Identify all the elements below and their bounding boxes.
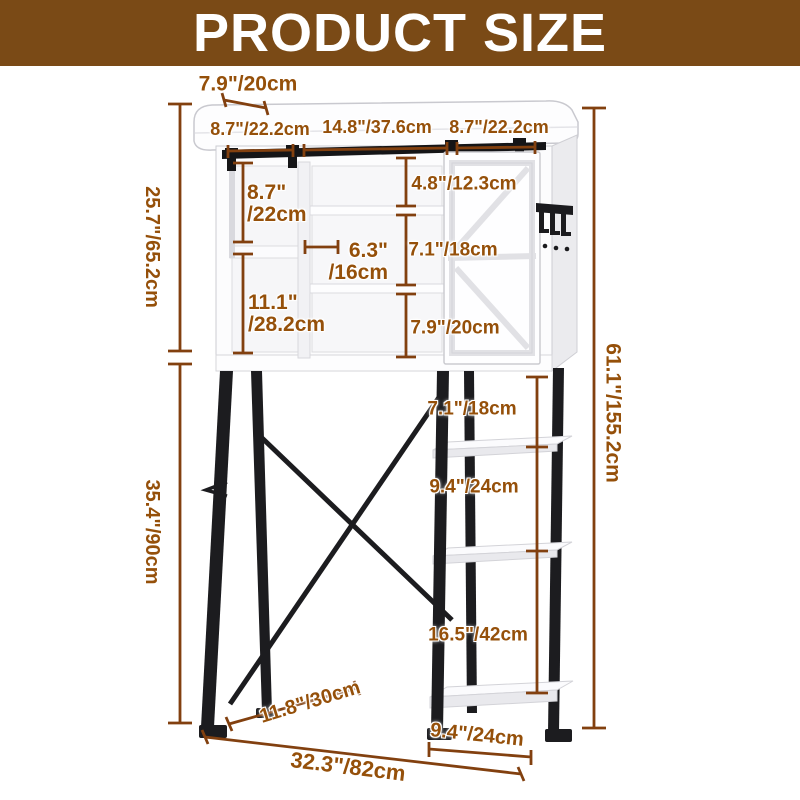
dim-stand-height: 35.4"/90cm (142, 479, 162, 584)
dim-top-width-middle: 14.8"/37.6cm (322, 118, 432, 136)
product-size-infographic: PRODUCT SIZE (0, 0, 800, 800)
dim-ladder-gap-middle: 9.4"/24cm (429, 478, 518, 497)
dim-ladder-gap-top: 7.1"/18cm (427, 400, 516, 419)
stand-frame (199, 368, 573, 742)
dim-middle-shelf: 6.3" /16cm (328, 240, 388, 284)
dim-top-depth: 7.9"/20cm (199, 74, 298, 95)
dim-left-upper-compartment: 8.7" /22cm (247, 182, 307, 226)
dim-top-width-right: 8.7"/22.2cm (449, 118, 549, 136)
cabinet-side-panel (552, 135, 577, 371)
dim-top-width-left: 8.7"/22.2cm (210, 120, 310, 138)
dim-left-lower-compartment: 11.1" /28.2cm (248, 292, 325, 336)
dim-cabinet-height: 25.7"/65.2cm (142, 186, 162, 308)
dim-total-height: 61.1"/155.2cm (603, 343, 624, 483)
dim-center-gap-middle: 7.1"/18cm (408, 241, 497, 260)
dim-center-gap-top: 4.8"/12.3cm (411, 175, 516, 194)
dim-center-gap-bottom: 7.9"/20cm (410, 319, 499, 338)
dim-ladder-gap-bottom: 16.5"/42cm (428, 626, 528, 645)
